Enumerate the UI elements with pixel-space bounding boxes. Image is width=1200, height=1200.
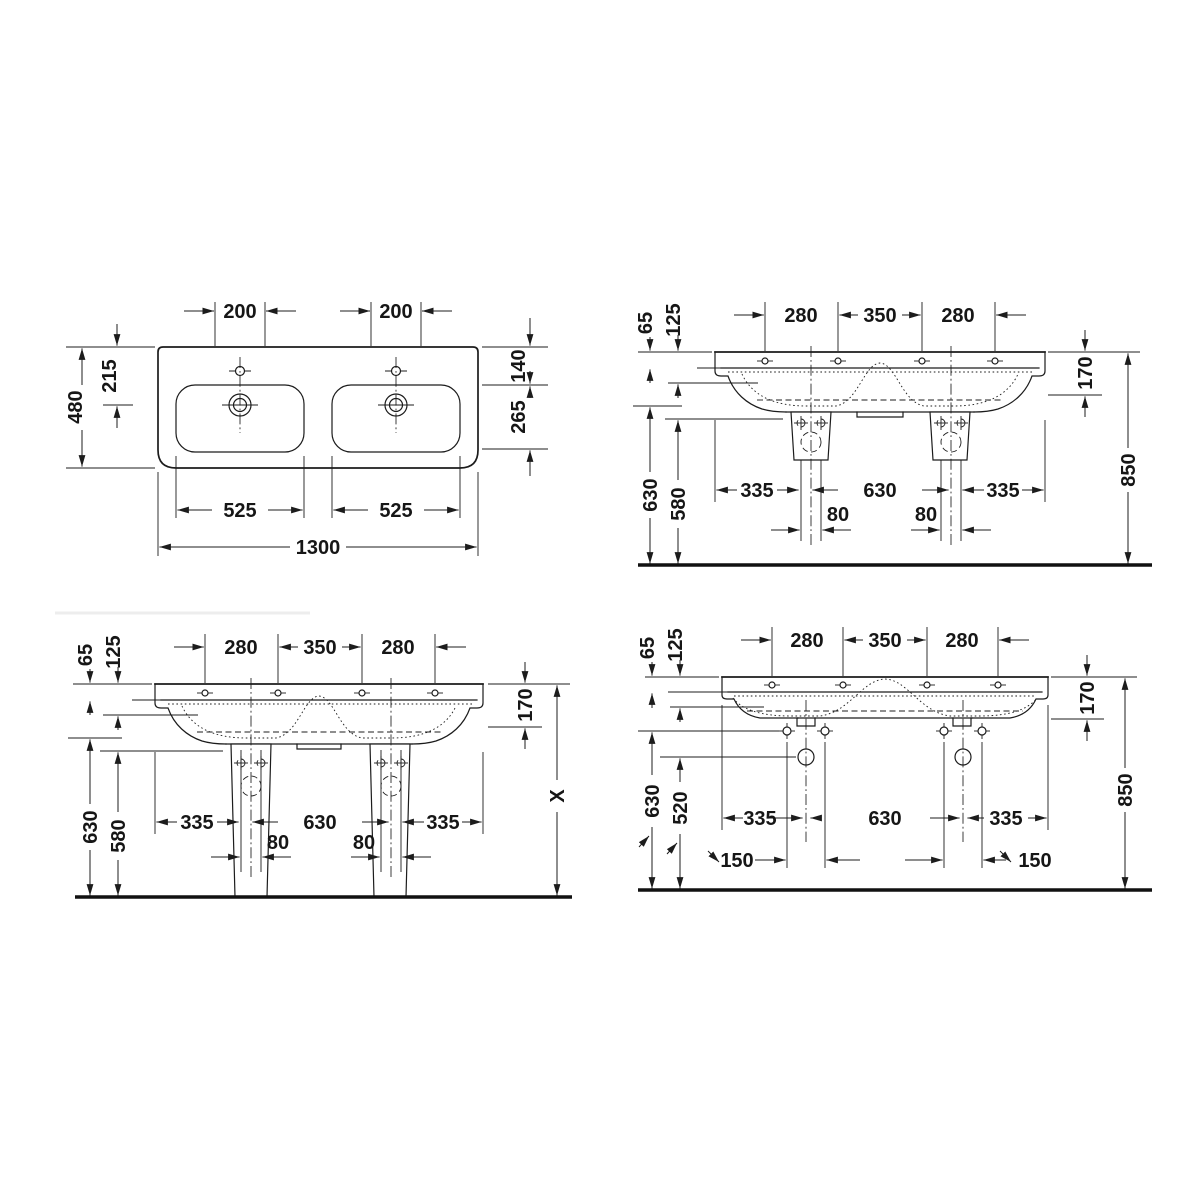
siphon-cover-view: 280 350 280 65 125 630 580 170 850 335	[615, 285, 1160, 585]
dim-label-tap-mid: 350	[868, 630, 901, 652]
dim-label-side-left: 335	[740, 480, 773, 502]
dim-front: 125	[665, 628, 687, 722]
dim-label-side-left: 335	[180, 812, 213, 834]
dim-top-row: 280 350 280	[741, 627, 1029, 676]
dim-label-tap-right: 280	[945, 630, 978, 652]
dim-label-tap-mid: 350	[303, 637, 336, 659]
dim-rim: 65	[75, 644, 97, 715]
dim-drain-height: 520	[667, 758, 692, 888]
dim-overall-width: 1300	[158, 472, 478, 559]
dim-label-side-left: 335	[743, 808, 776, 830]
dim-underside: 170	[1048, 330, 1102, 417]
wall-mounted-view: 280 350 280 65 125 630 520 170 850	[615, 610, 1160, 915]
dim-rear-to-drain: 215	[99, 324, 133, 428]
dim-mid-row: 335 630 335	[722, 705, 1048, 830]
dim-label-tap-right: 280	[381, 637, 414, 659]
dim-mid-row: 335 630 335	[715, 420, 1045, 502]
dim-tap-left: 200	[184, 301, 296, 346]
dim-label-tap-right: 280	[941, 305, 974, 327]
tap-marks	[764, 682, 1006, 688]
dim-underside: 170	[1051, 655, 1104, 741]
dim-front: 125	[663, 303, 685, 398]
pedestal-view: 280 350 280 65 125 630 580 170 X 335	[50, 610, 605, 920]
dim-label-tap-left: 280	[784, 305, 817, 327]
ext-lines-left	[638, 677, 796, 757]
dim-clear-bowl: 630	[80, 739, 102, 895]
dim-label-tap-left: 200	[223, 301, 256, 323]
dim-label-depth: 480	[65, 390, 87, 423]
dim-label-height: 850	[1118, 453, 1140, 486]
dim-label-trap-right: 80	[353, 832, 375, 854]
dim-label-clear-apron: 580	[668, 487, 690, 520]
dim-label-tap-left: 280	[790, 630, 823, 652]
dim-label-fix-height: 630	[642, 784, 664, 817]
dim-rim: 65	[637, 637, 659, 708]
dim-front: 125	[103, 635, 125, 730]
dim-label-drain-height: 520	[670, 791, 692, 824]
dim-label-trap-left: 80	[827, 504, 849, 526]
dim-underside: 170	[488, 662, 542, 749]
dim-label-clear-bowl: 630	[80, 810, 102, 843]
dim-clear-bowl: 630	[640, 407, 662, 563]
dim-label-bowl-left: 525	[223, 500, 256, 522]
dim-label-center: 630	[303, 812, 336, 834]
dim-label-fix-left: 150	[720, 850, 753, 872]
dim-label-center: 630	[868, 808, 901, 830]
dim-clear-apron: 580	[668, 420, 690, 563]
dim-label-tap-right: 200	[379, 301, 412, 323]
dim-label-fix-right: 150	[1018, 850, 1051, 872]
dim-label-height: X	[547, 789, 569, 803]
dim-top-row: 280 350 280	[174, 634, 466, 683]
dim-label-trap-right: 80	[915, 504, 937, 526]
dim-label-underside: 170	[515, 688, 537, 721]
dim-label-rim: 65	[637, 637, 659, 659]
dim-label-tap-left: 280	[224, 637, 257, 659]
dim-label-rim: 65	[75, 644, 97, 666]
dim-label-side-right: 335	[986, 480, 1019, 502]
dim-label-tap-mid: 350	[863, 305, 896, 327]
dim-label-bowl-depth: 265	[508, 400, 530, 433]
dim-right-chain: 140 265	[482, 318, 548, 476]
dim-label-clear-apron: 580	[108, 819, 130, 852]
dim-rim: 65	[635, 312, 657, 383]
dim-label-rim: 65	[635, 312, 657, 334]
dim-label-underside: 170	[1077, 681, 1099, 714]
dim-label-front: 125	[663, 303, 685, 336]
dim-label-front: 125	[665, 628, 687, 661]
dim-clear-apron: 580	[108, 752, 130, 895]
dimension-drawing: 200 200 480 215 140 265 525 525	[0, 0, 1200, 1200]
dim-label-clear-bowl: 630	[640, 478, 662, 511]
plan-view: 200 200 480 215 140 265 525 525	[55, 288, 600, 580]
drain-circles	[798, 749, 971, 765]
dim-label-center: 630	[863, 480, 896, 502]
dim-fix-height: 630	[639, 732, 664, 888]
tap-marks	[197, 690, 443, 696]
dim-fixing-row: 150 150	[708, 742, 1052, 872]
dim-label-height: 850	[1115, 773, 1137, 806]
dim-label-overall-width: 1300	[296, 537, 341, 559]
dim-label-side-right: 335	[989, 808, 1022, 830]
dim-label-front: 125	[103, 635, 125, 668]
dim-trap-row: 80 80	[771, 504, 991, 530]
siphon-covers	[791, 412, 970, 541]
dim-mid-row: 335 630 335	[155, 752, 483, 834]
dim-label-side-right: 335	[426, 812, 459, 834]
ext-lines-left	[68, 684, 223, 751]
basin-outline	[158, 347, 478, 468]
dim-top-row: 280 350 280	[734, 302, 1026, 351]
dim-label-bowl-right: 525	[379, 500, 412, 522]
dim-label-underside: 170	[1075, 356, 1097, 389]
dim-label-rear-to-bowl: 140	[508, 349, 530, 382]
dim-label-rear-to-drain: 215	[99, 359, 121, 392]
dim-label-trap-left: 80	[267, 832, 289, 854]
dim-tap-right: 200	[340, 301, 452, 346]
